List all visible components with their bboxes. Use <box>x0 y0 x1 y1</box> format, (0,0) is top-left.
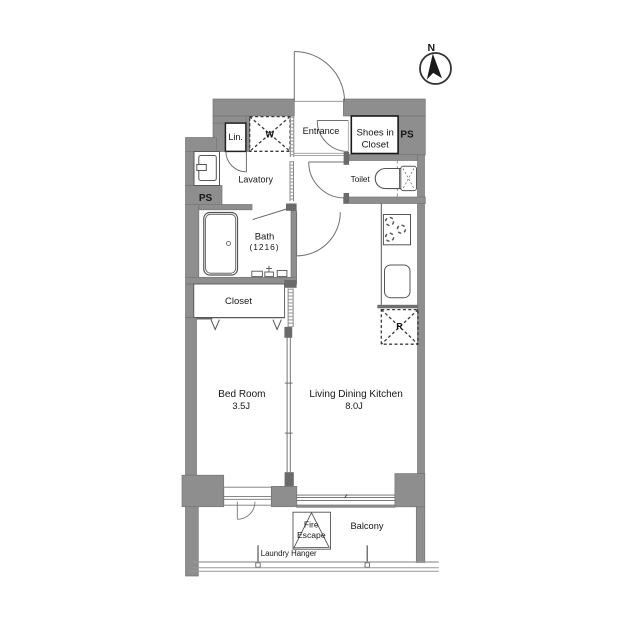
svg-text:Laundry Hanger: Laundry Hanger <box>261 549 317 558</box>
svg-text:Fire: Fire <box>304 520 319 530</box>
svg-text:R: R <box>396 322 403 332</box>
svg-text:8.0J: 8.0J <box>345 401 363 411</box>
svg-text:Lin.: Lin. <box>228 132 243 142</box>
svg-text:Lavatory: Lavatory <box>238 175 273 185</box>
svg-text:Bath: Bath <box>255 231 275 242</box>
svg-text:Escape: Escape <box>297 530 326 540</box>
svg-text:N: N <box>428 42 436 54</box>
svg-text:PS: PS <box>400 130 414 141</box>
svg-text:Closet: Closet <box>362 139 390 150</box>
svg-text:PS: PS <box>199 193 213 204</box>
svg-text:Balcony: Balcony <box>350 521 383 531</box>
svg-text:Shoes in: Shoes in <box>357 128 394 139</box>
svg-text:3.5J: 3.5J <box>232 401 250 411</box>
svg-text:(1216): (1216) <box>250 242 280 252</box>
svg-text:Toilet: Toilet <box>351 175 371 184</box>
svg-text:Entrance: Entrance <box>303 126 340 136</box>
svg-text:Closet: Closet <box>225 296 252 307</box>
svg-text:Living Dining Kitchen: Living Dining Kitchen <box>309 389 402 400</box>
svg-text:Bed Room: Bed Room <box>218 389 265 400</box>
svg-text:W: W <box>266 129 275 139</box>
